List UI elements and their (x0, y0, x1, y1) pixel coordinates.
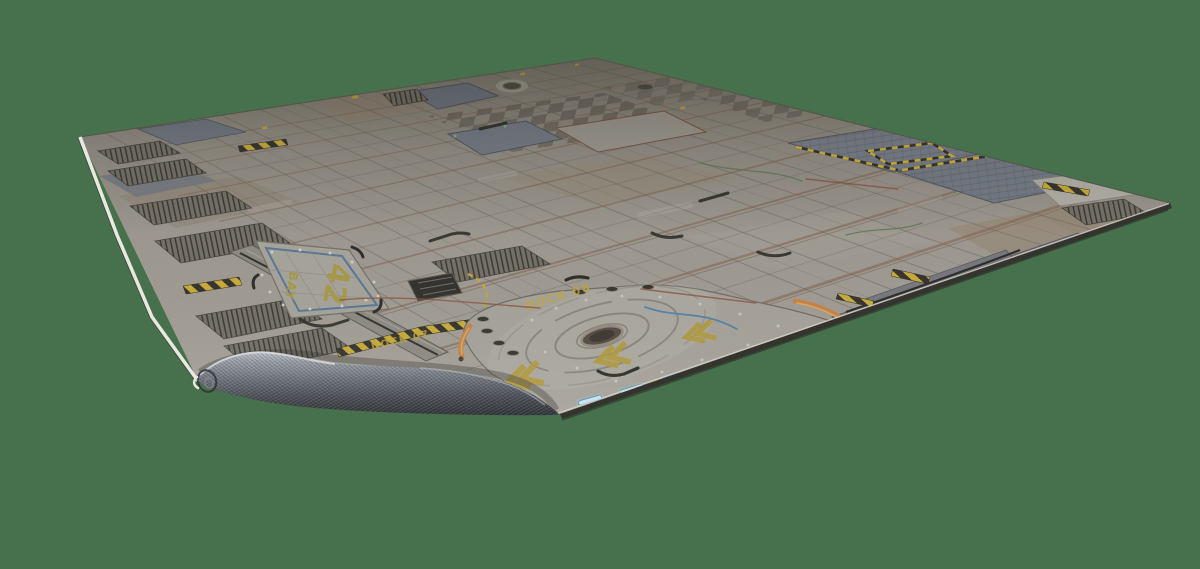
mat-render: BAY 42 (0, 0, 1200, 569)
scene: BAY 42 (0, 0, 1200, 569)
